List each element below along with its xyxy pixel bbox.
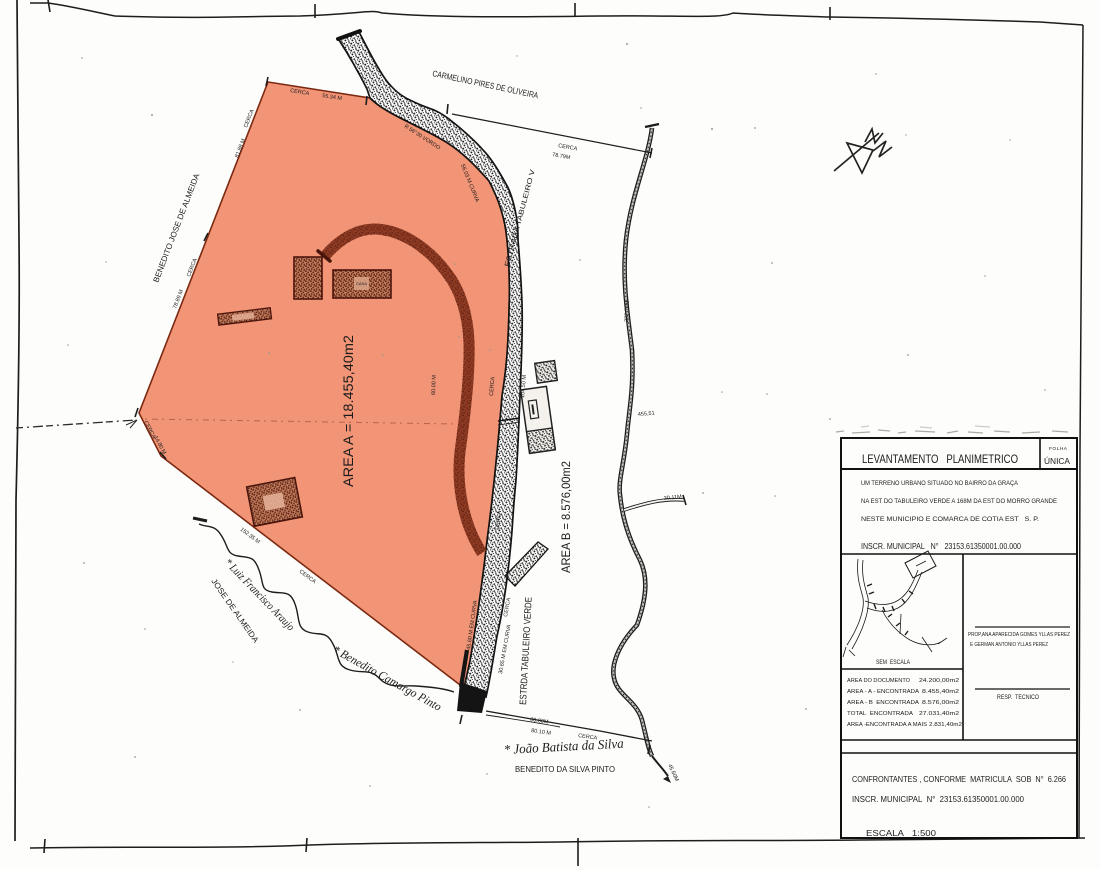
svg-text:237,74M: 237,74M	[624, 300, 631, 322]
svg-text:BENEDITO DA SILVA PINTO: BENEDITO DA SILVA PINTO	[515, 764, 615, 774]
svg-text:AREA - A - ENCONTRADA: AREA - A - ENCONTRADA	[847, 689, 919, 695]
svg-text:SEM ESCALA: SEM ESCALA	[876, 660, 910, 666]
svg-text:AREA A = 18.455,40m2: AREA A = 18.455,40m2	[340, 335, 356, 487]
svg-text:NESTE MUNICIPIO E COMARCA: NESTE MUNICIPIO E COMARCA DE COTIA EST S…	[861, 516, 1039, 523]
svg-text:2.831,40m2: 2.831,40m2	[929, 722, 962, 728]
svg-text:PROP,ANA APARECIDA GOMES YLLAS: PROP,ANA APARECIDA GOMES YLLAS PEREZ	[968, 632, 1071, 638]
svg-text:RESP. TECNICO: RESP. TECNICO	[997, 695, 1039, 701]
svg-text:AREA DO DOCUMENTO: AREA DO DOCUMENTO	[847, 678, 910, 684]
svg-text:27.031,40m2: 27.031,40m2	[919, 711, 959, 717]
svg-text:60.00 M: 60.00 M	[431, 375, 438, 395]
svg-text:FOLHA: FOLHA	[1049, 446, 1068, 452]
svg-text:CASA: CASA	[356, 281, 367, 286]
svg-text:ESCALA 1:500: ESCALA 1:500	[866, 828, 936, 838]
svg-text:LEVANTAMENTO PLANIMETRICO: LEVANTAMENTO PLANIMETRICO	[862, 452, 1018, 466]
svg-text:AREA - B ENCONTRADA: AREA - B ENCONTRADA	[847, 700, 919, 706]
svg-text:E GERMAN ANTONIO YLLAS PEREZ: E GERMAN ANTONIO YLLAS PEREZ	[970, 642, 1049, 648]
svg-text:UM TERRENO URBANO SITUADO NO B: UM TERRENO URBANO SITUADO NO BAIRRO DA G…	[861, 480, 1018, 487]
svg-text:NA EST DO TABULEIRO VERDE A 16: NA EST DO TABULEIRO VERDE A 168M DA EST …	[861, 498, 1057, 505]
svg-text:CONFRONTANTES , CONFORME MATR: CONFRONTANTES , CONFORME MATRICULA SOB N…	[852, 775, 1067, 784]
svg-text:INSCR. MUNICIPAL N° 23153.61: INSCR. MUNICIPAL N° 23153.61350001.00.00…	[852, 795, 1024, 804]
svg-text:TOTAL ENCONTRADA: TOTAL ENCONTRADA	[847, 711, 913, 717]
svg-text:8.455,40m2: 8.455,40m2	[922, 689, 959, 695]
svg-text:ÚNICA: ÚNICA	[1044, 457, 1071, 466]
svg-text:AREA B = 8.576,00m2: AREA B = 8.576,00m2	[559, 461, 573, 573]
svg-text:AREA -ENCONTRADA A MAIS: AREA -ENCONTRADA A MAIS	[847, 722, 927, 728]
svg-text:INSCR. MUNICIPAL N° 23153: INSCR. MUNICIPAL N° 23153.61350001.00.00…	[861, 542, 1022, 551]
svg-text:8.576,00m2: 8.576,00m2	[922, 700, 959, 706]
svg-text:24.200,00m2: 24.200,00m2	[919, 678, 959, 684]
